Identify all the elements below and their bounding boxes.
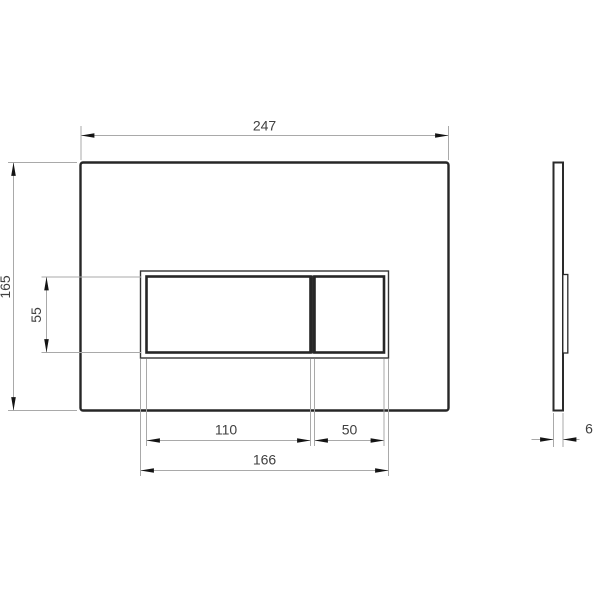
- dim-plate-width: 247: [81, 118, 449, 161]
- dim-label-plate-width: 247: [253, 118, 277, 134]
- large-flush-button: [147, 277, 311, 353]
- dim-plate-height: 165: [0, 163, 77, 411]
- side-view: [554, 163, 568, 411]
- drawing-page: 247 165 55 110 50: [0, 0, 600, 600]
- side-profile-outline: [554, 163, 564, 411]
- front-view: [81, 163, 449, 411]
- dim-label-plate-height: 165: [0, 275, 13, 299]
- dim-label-button-height: 55: [28, 307, 44, 323]
- side-button-protrusion: [563, 275, 568, 354]
- dim-label-plate-thickness: 6: [585, 421, 593, 437]
- technical-drawing-canvas: 247 165 55 110 50: [0, 0, 600, 600]
- dim-plate-thickness: 6: [532, 413, 594, 447]
- dim-label-small-button-width: 50: [342, 422, 358, 438]
- dim-label-large-button-width: 110: [215, 422, 238, 438]
- dim-label-button-frame-width: 166: [253, 452, 277, 468]
- small-flush-button: [315, 277, 385, 353]
